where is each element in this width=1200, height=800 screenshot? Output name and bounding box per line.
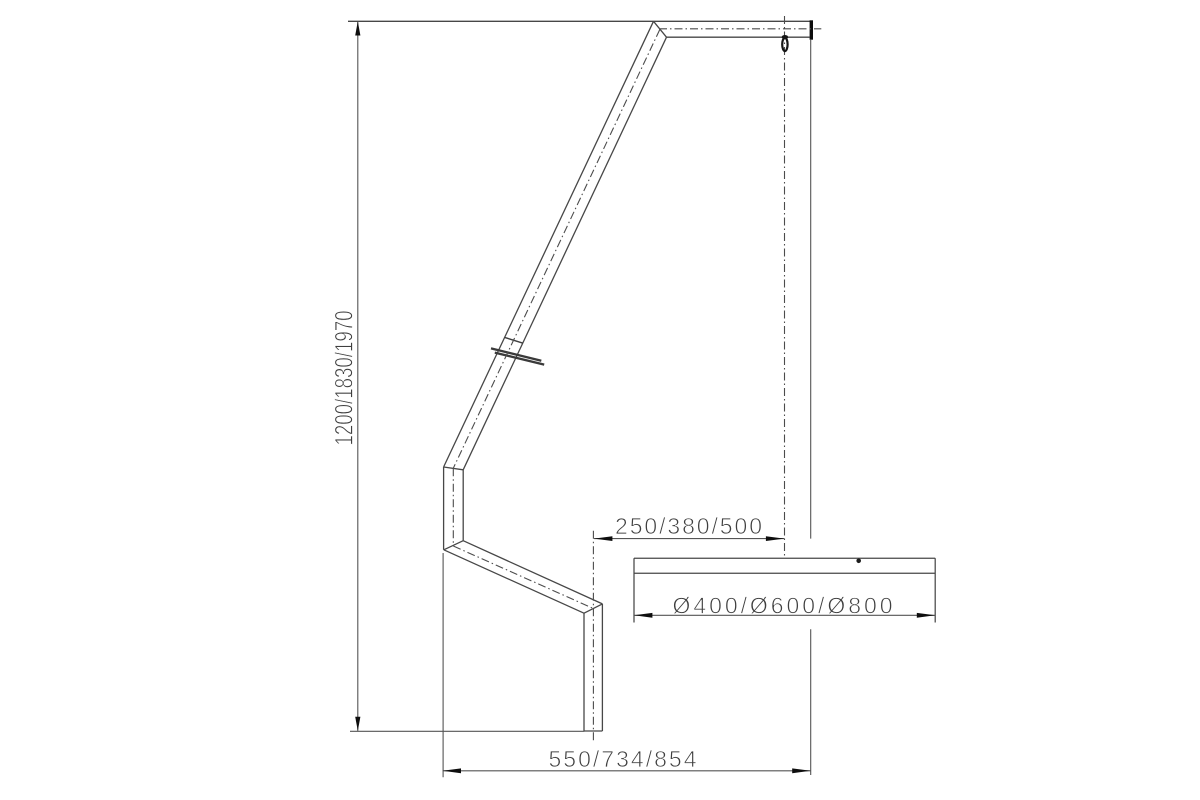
svg-text:1200/1830/1970: 1200/1830/1970 xyxy=(331,311,359,446)
svg-text:550/734/854: 550/734/854 xyxy=(549,746,697,772)
svg-text:250/380/500: 250/380/500 xyxy=(615,513,762,539)
svg-text:Ø400/Ø600/Ø800: Ø400/Ø600/Ø800 xyxy=(673,593,893,619)
